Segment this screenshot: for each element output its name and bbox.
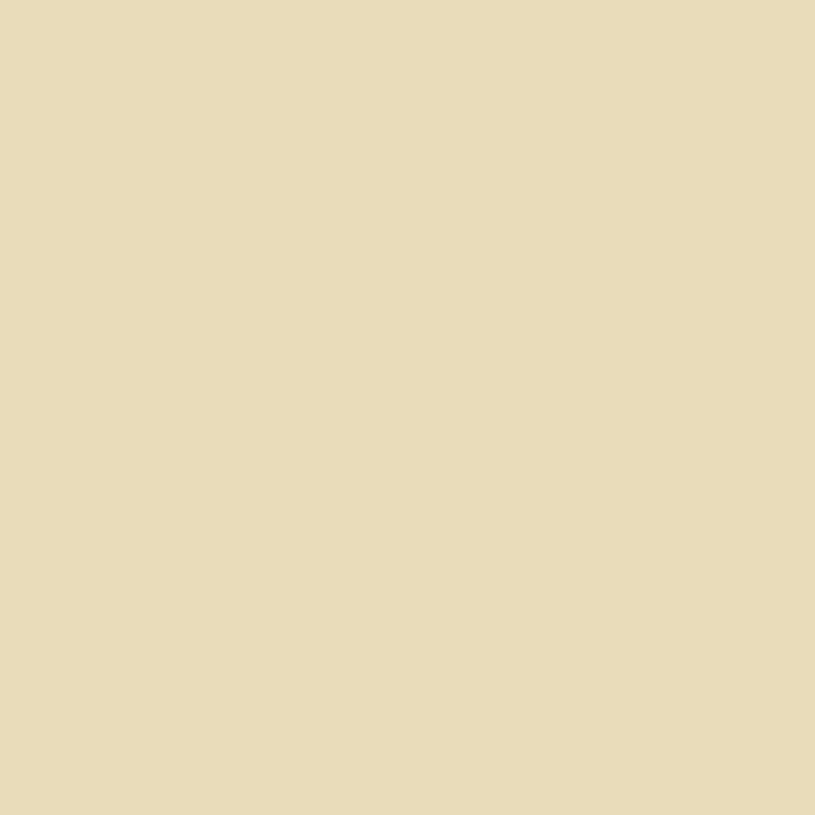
map-viewport (0, 0, 815, 815)
brisbane-map-canvas (0, 0, 815, 815)
